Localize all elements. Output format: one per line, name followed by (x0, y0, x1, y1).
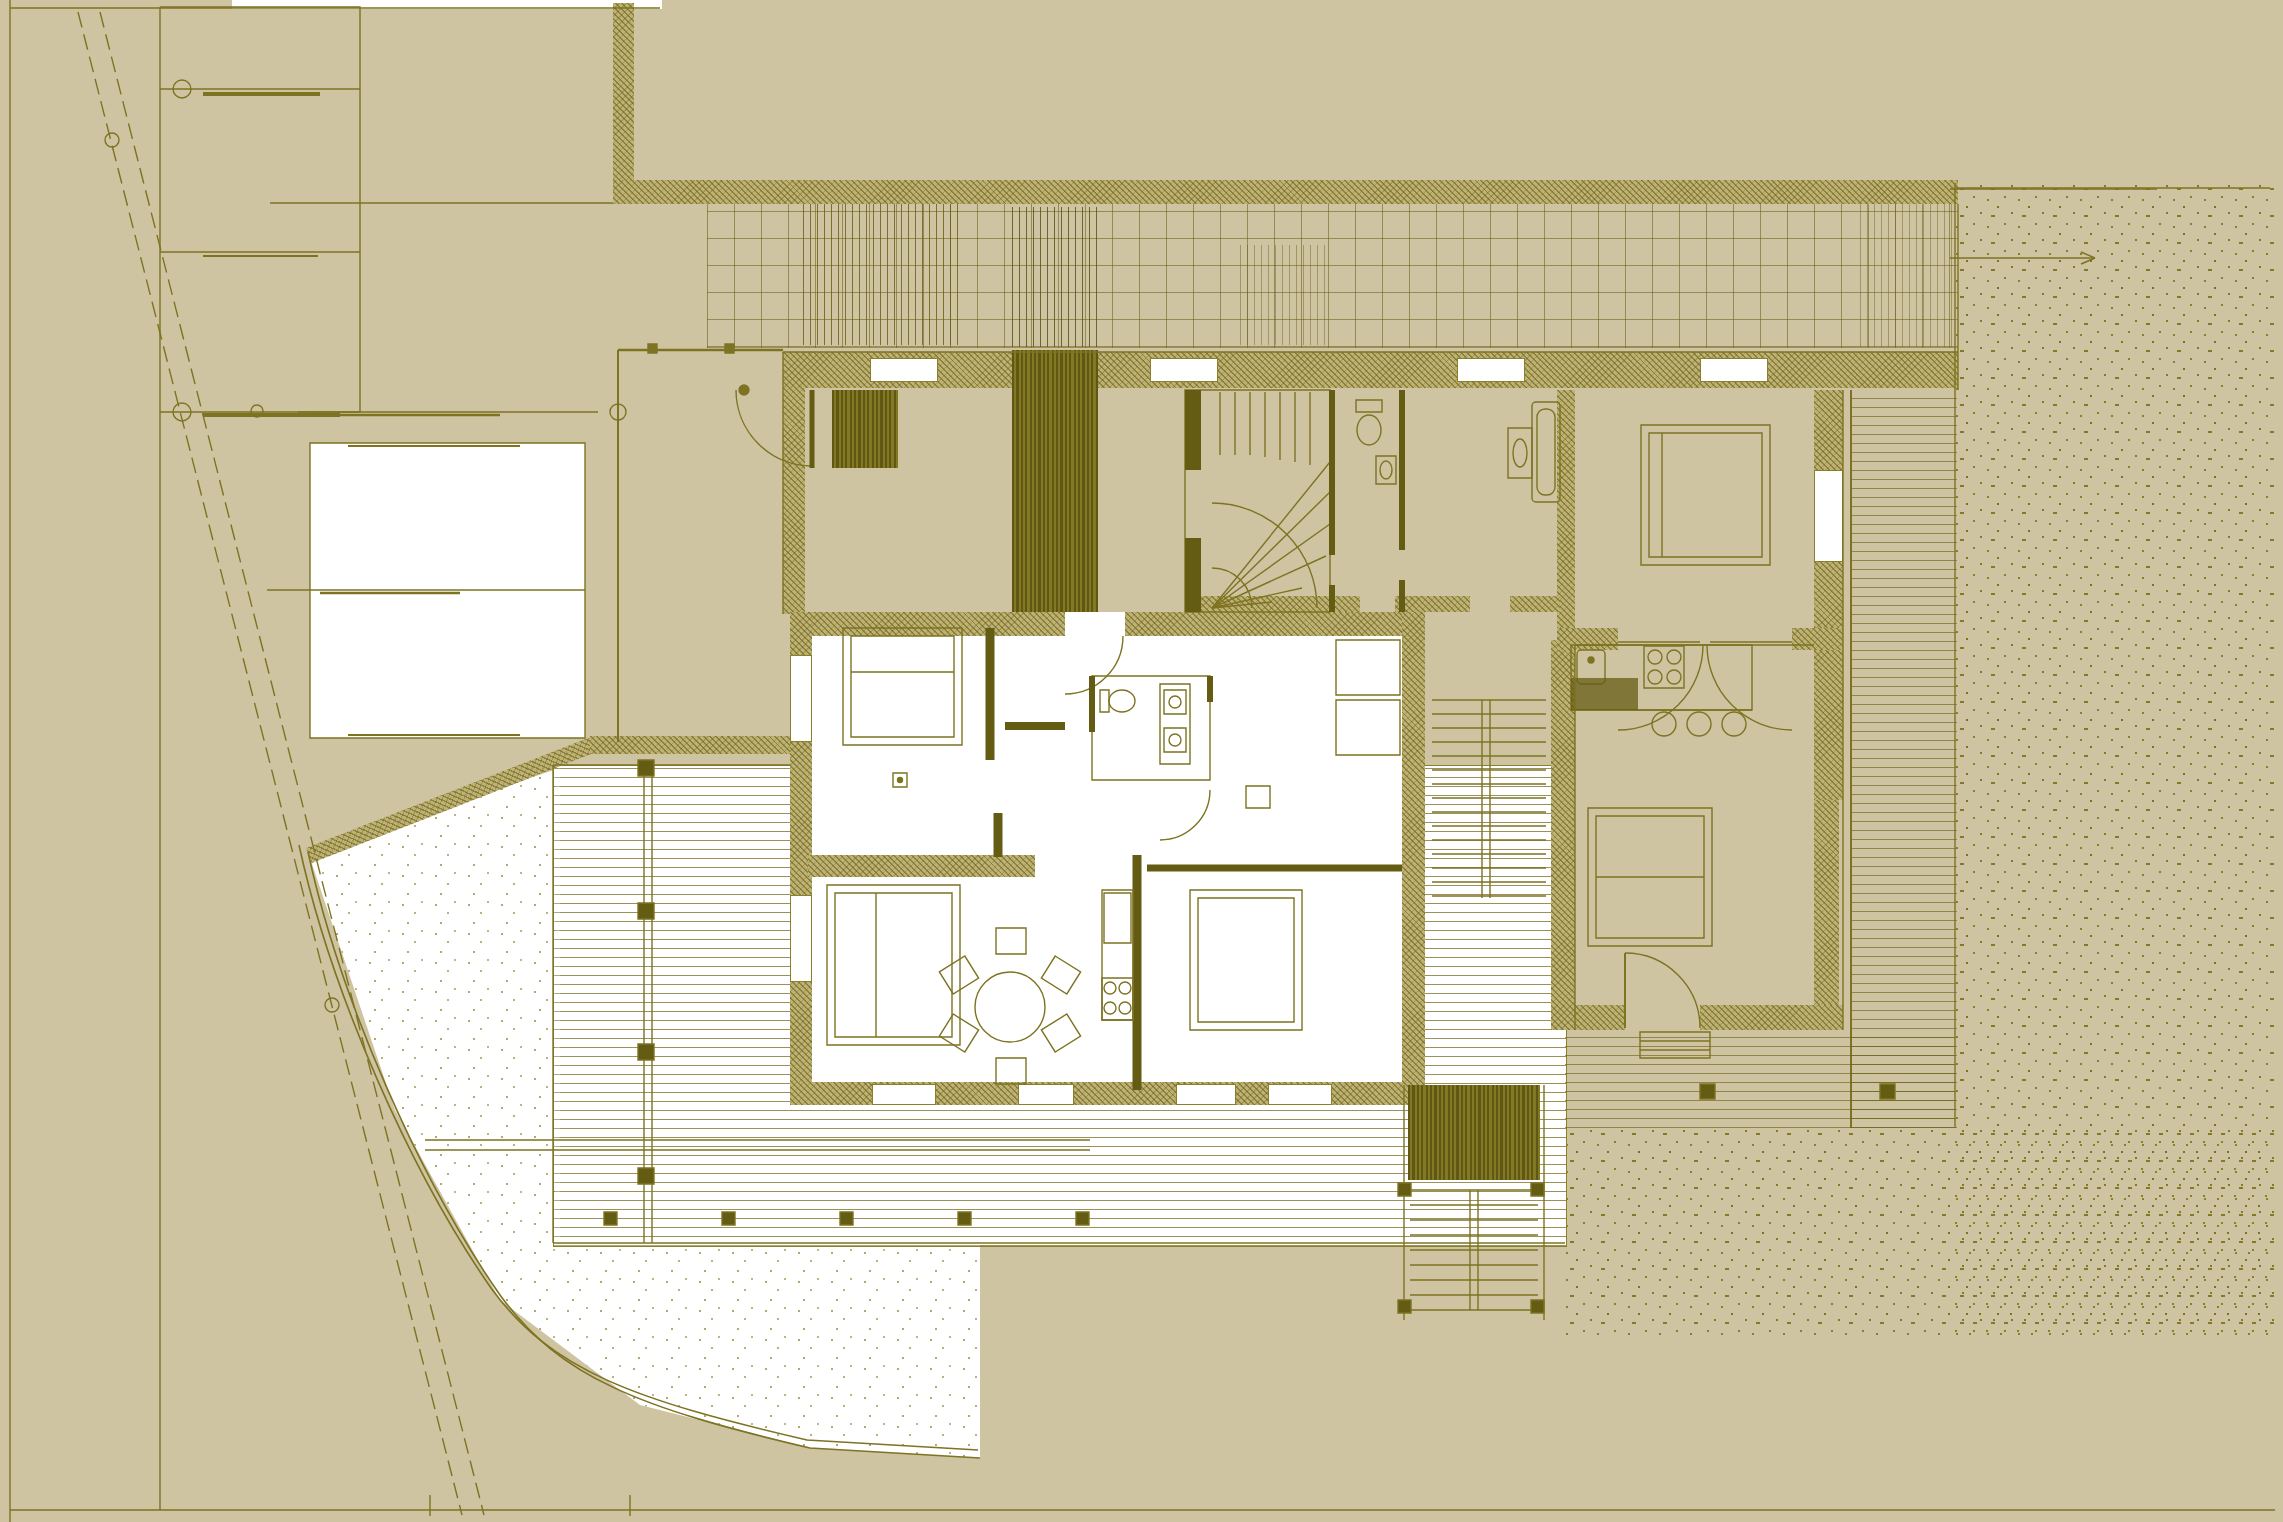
linework-layer (0, 0, 2283, 1522)
garden-fence (610, 344, 783, 742)
exterior-stair-south (1398, 1085, 1544, 1320)
site-border-lines (10, 0, 2275, 1522)
wc-room (1332, 390, 1396, 612)
entry-porch (736, 385, 812, 468)
winder-stair (1185, 390, 1330, 612)
common-stair (1432, 700, 1546, 898)
garden-boundary-curve (299, 845, 980, 1458)
site-survey-lines (270, 203, 613, 415)
white-plot-outbuilding (267, 443, 585, 738)
white-unit-interior (827, 628, 1402, 1090)
plot-upper-left (160, 7, 360, 421)
living-kitchen-tan-unit (1571, 645, 1752, 1058)
bathroom-upper (1402, 390, 1560, 612)
building-outline-accents (553, 204, 1958, 1243)
gravel-east-annotations (1950, 183, 2270, 1128)
site-plan-canvas (0, 0, 2283, 1522)
boundary-road-dashed (78, 12, 484, 1515)
boundary-road-nodes (105, 133, 339, 1012)
